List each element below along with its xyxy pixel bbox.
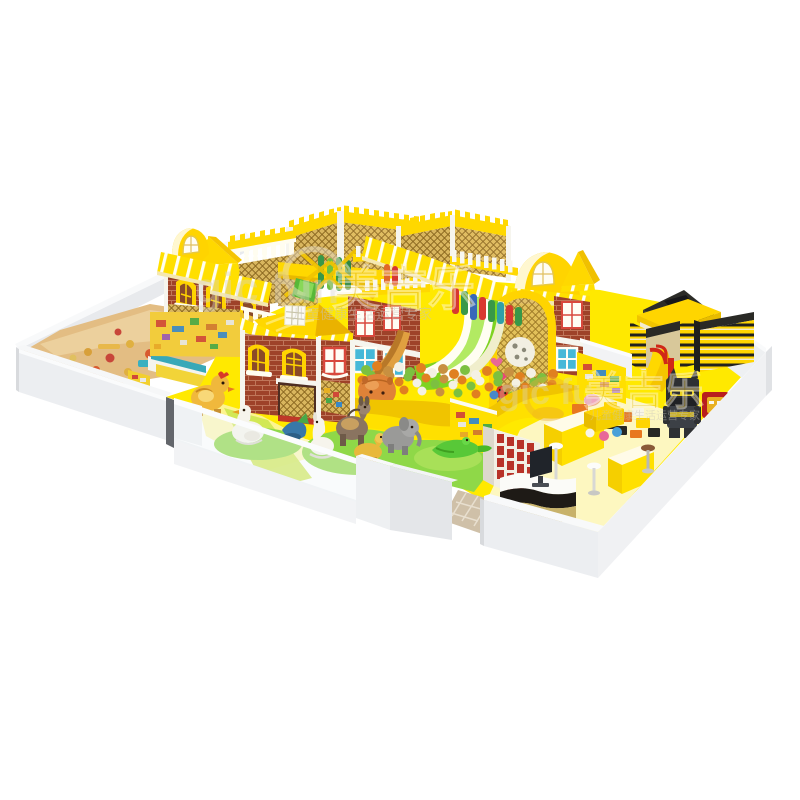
svg-text:儿童健康生活运营专家: 儿童健康生活运营专家 — [292, 306, 432, 322]
svg-text:美吉乐: 美吉乐 — [584, 370, 704, 414]
svg-text:儿童健康生活运营专家: 儿童健康生活运营专家 — [590, 408, 700, 422]
